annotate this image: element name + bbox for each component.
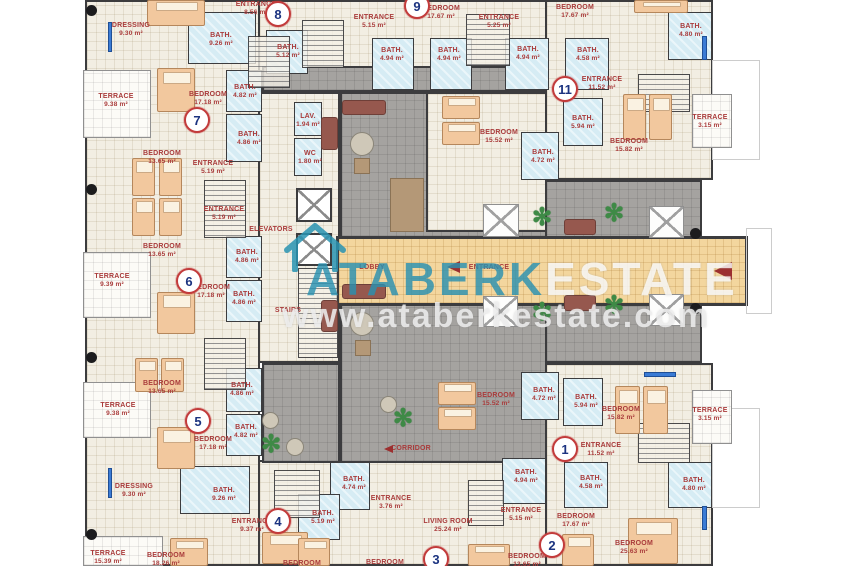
sofa (564, 295, 596, 311)
bed-pillow (448, 98, 475, 105)
unit-number-badge: 2 (539, 532, 565, 558)
entrance-arrow-icon (384, 445, 393, 453)
column-dot (86, 5, 97, 16)
skylight (483, 296, 518, 327)
room-label: BATH.4.94 m² (380, 47, 404, 63)
room-area: 4.94 m² (437, 55, 461, 62)
room-label: BATH.4.58 m² (579, 475, 603, 491)
room-area: 18.26 m² (147, 560, 185, 566)
round-table (286, 438, 304, 456)
room-name: CORRIDOR (391, 445, 431, 452)
plant-icon: ✻ (532, 206, 552, 230)
room-label: CORRIDOR (391, 445, 431, 453)
room-name: BEDROOM (194, 436, 232, 443)
room-label: BATH.5.19 m² (311, 510, 335, 526)
room-area: 9.39 m² (94, 281, 129, 288)
room-name: BATH. (515, 469, 537, 476)
room-label: BATH.4.94 m² (437, 47, 461, 63)
room-label: BATH.5.94 m² (571, 115, 595, 131)
room-label: BEDROOM17.18 m² (194, 436, 232, 452)
room-area: 5.19 m² (204, 214, 245, 221)
lobby-path (336, 236, 748, 306)
room-name: BATH. (343, 476, 365, 483)
room-name: BEDROOM (556, 4, 594, 11)
room-area: 11.52 m² (581, 450, 622, 457)
sofa (321, 300, 338, 332)
room-name: STAIRS (275, 307, 301, 314)
room-name: BATH. (210, 32, 232, 39)
room-name: BATH. (231, 382, 253, 389)
window-strip (108, 468, 112, 498)
room-label: ENTRANCE (469, 264, 510, 272)
bed-pillow (647, 390, 665, 404)
unit-number-badge: 8 (265, 1, 291, 27)
room-area: 4.80 m² (679, 31, 703, 38)
room-area: 13.65 m² (143, 251, 181, 258)
room-area: 4.94 m² (380, 55, 404, 62)
room-name: BATH. (533, 387, 555, 394)
column-dot (86, 529, 97, 540)
unit-number-badge: 6 (176, 268, 202, 294)
stair-flight (468, 480, 504, 526)
room-area: 4.72 m² (532, 395, 556, 402)
unit-number-badge: 7 (184, 107, 210, 133)
room-area: 5.15 m² (501, 515, 542, 522)
room-name: ENTRANCE (582, 76, 623, 83)
bed-pillow (636, 522, 672, 535)
bed (649, 94, 672, 140)
room-label: ENTRANCE11.52 m² (581, 442, 622, 458)
room-area: 13.65 m² (143, 388, 181, 395)
bed (468, 544, 510, 566)
bed-pillow (156, 2, 197, 10)
room-label: ENTRANCE5.15 m² (501, 507, 542, 523)
column-dot (86, 184, 97, 195)
bed-pillow (163, 430, 190, 442)
bed-pillow (619, 390, 637, 404)
room-label: LAV.1.94 m² (296, 113, 320, 129)
room-name: BATH. (683, 477, 705, 484)
bed (623, 94, 646, 140)
room-name: BATH. (575, 394, 597, 401)
room-area: 3.15 m² (692, 122, 727, 129)
plant-icon: ✻ (532, 301, 552, 325)
bed (157, 427, 195, 469)
room-area: 5.12 m² (276, 52, 300, 59)
room-area: 17.67 m² (557, 521, 595, 528)
sofa (342, 284, 386, 299)
room-label: BATH.4.82 m² (233, 84, 257, 100)
bed (157, 292, 195, 334)
room-area: 13.65 m² (143, 158, 181, 165)
room-label: DRESSING9.30 m² (112, 22, 150, 38)
room-area: 15.82 m² (610, 146, 648, 153)
room-name: BEDROOM (143, 150, 181, 157)
room-area: 4.58 m² (576, 55, 600, 62)
room-label: ELEVATORS (249, 226, 292, 234)
room-label: BEDROOM15.52 m² (477, 392, 515, 408)
room-area: 1.94 m² (296, 121, 320, 128)
window-strip (702, 506, 707, 530)
room-name: ENTRANCE (193, 160, 234, 167)
bed (132, 198, 155, 236)
room-label: BEDROOM18.26 m² (147, 552, 185, 566)
canopy-outline (746, 228, 772, 314)
room-name: DRESSING (112, 22, 150, 29)
bed-pillow (444, 409, 471, 416)
room-label: BEDROOM (366, 559, 404, 566)
room-name: BATH. (234, 84, 256, 91)
plant-icon: ✻ (393, 407, 413, 431)
room-label: WC1.80 m² (298, 150, 322, 166)
skylight (649, 206, 684, 238)
room-area: 4.86 m² (230, 390, 254, 397)
floor-plan: ATABERKESTATE www.ataberkestate.com ✻✻✻✻… (0, 0, 850, 566)
room-name: BEDROOM (602, 406, 640, 413)
room-label: BATH.4.82 m² (234, 424, 258, 440)
room-label: BEDROOM15.52 m² (480, 129, 518, 145)
room-label: ENTRANCE5.15 m² (354, 14, 395, 30)
bed (562, 534, 594, 566)
room-name: BEDROOM (557, 513, 595, 520)
room-name: BATH. (517, 46, 539, 53)
room-area: 25.63 m² (615, 548, 653, 555)
room-area: 5.19 m² (311, 518, 335, 525)
room-area: 9.38 m² (98, 101, 133, 108)
room-area: 4.80 m² (682, 485, 706, 492)
room-label: ENTRANCE11.52 m² (582, 76, 623, 92)
room-area: 15.82 m² (602, 414, 640, 421)
plant-icon: ✻ (604, 294, 624, 318)
room-label: STAIRS (275, 307, 301, 315)
room-name: ENTRANCE (479, 14, 520, 21)
room-label: BEDROOM13.65 m² (143, 150, 181, 166)
bed-pillow (643, 2, 681, 7)
room-area: 17.67 m² (422, 13, 460, 20)
room-label: BATH.5.94 m² (574, 394, 598, 410)
column-dot (690, 228, 701, 239)
room-area: 4.94 m² (514, 477, 538, 484)
room-area: 5.94 m² (571, 123, 595, 130)
room-label: TERRACE9.38 m² (98, 93, 133, 109)
room-label: BATH.4.94 m² (516, 46, 540, 62)
room-name: BEDROOM (147, 552, 185, 559)
bed-pillow (475, 546, 505, 553)
room-area: 4.72 m² (531, 157, 555, 164)
bed-pillow (304, 541, 327, 550)
unit-number-badge: 1 (552, 436, 578, 462)
sofa (564, 219, 596, 235)
room-label: BATH.4.86 m² (235, 249, 259, 265)
room-area: 4.86 m² (232, 299, 256, 306)
bed-pillow (163, 201, 180, 212)
bed (442, 122, 480, 145)
room-label: BATH.5.12 m² (276, 44, 300, 60)
room-name: BATH. (233, 291, 255, 298)
room-name: BEDROOM (143, 380, 181, 387)
room-area: 15.39 m² (90, 558, 125, 565)
room-label: BATH.4.80 m² (679, 23, 703, 39)
room-area: 25.24 m² (423, 526, 472, 533)
bed-pillow (136, 201, 153, 212)
room-area: 9.30 m² (112, 30, 150, 37)
room-label: BATH.9.26 m² (212, 487, 236, 503)
skylight (483, 204, 519, 237)
room-label: TERRACE15.39 m² (90, 550, 125, 566)
room-label: ENTRANCE5.19 m² (204, 206, 245, 222)
room-label: ENTRANCE5.25 m² (479, 14, 520, 30)
stair-flight (302, 20, 344, 68)
room-label: LIVING ROOM25.24 m² (423, 518, 472, 534)
room-area: 4.58 m² (579, 483, 603, 490)
room-name: BATH. (572, 115, 594, 122)
room-label: ENTRANCE3.76 m² (371, 495, 412, 511)
room-area: 11.52 m² (582, 84, 623, 91)
room-name: BATH. (680, 23, 702, 30)
room-area: 4.94 m² (516, 54, 540, 61)
elevator-cell (296, 188, 332, 222)
room-name: ENTRANCE (354, 14, 395, 21)
table (354, 158, 370, 174)
plant-icon: ✻ (261, 433, 281, 457)
room-name: BEDROOM (508, 553, 546, 560)
room-name: LIVING ROOM (423, 518, 472, 525)
room-label: BATH.4.74 m² (342, 476, 366, 492)
room-label: BATH.4.86 m² (232, 291, 256, 307)
bed (634, 0, 688, 13)
room-name: BEDROOM (477, 392, 515, 399)
room-area: 9.26 m² (209, 40, 233, 47)
bed-pillow (139, 361, 156, 371)
room-name: BATH. (580, 475, 602, 482)
room-name: BATH. (277, 44, 299, 51)
room-name: ENTRANCE (501, 507, 542, 514)
bed (438, 382, 476, 405)
room-area: 5.19 m² (193, 168, 234, 175)
room-name: BATH. (236, 249, 258, 256)
bed (147, 0, 205, 26)
window-strip (702, 36, 707, 60)
room-area: 17.67 m² (556, 12, 594, 19)
room-label: BEDROOM15.82 m² (610, 138, 648, 154)
room-area: 4.82 m² (233, 92, 257, 99)
room-area: 13.65 m² (508, 561, 546, 566)
room-name: ENTRANCE (371, 495, 412, 502)
room-area: 5.94 m² (574, 402, 598, 409)
bed (643, 386, 668, 434)
round-table (262, 412, 279, 429)
bed-pillow (165, 361, 182, 371)
unit-number-badge: 5 (185, 408, 211, 434)
bed-pillow (163, 295, 190, 307)
room-label: TERRACE3.15 m² (692, 407, 727, 423)
room-name: TERRACE (692, 114, 727, 121)
room-area: 17.18 m² (189, 99, 227, 106)
room-label: BATH.4.86 m² (237, 131, 261, 147)
room-name: ENTRANCE (581, 442, 622, 449)
room-area: 1.80 m² (298, 158, 322, 165)
elevator-cell (296, 233, 332, 266)
column-dot (86, 352, 97, 363)
room-area: 4.86 m² (235, 257, 259, 264)
room-label: LOBBY (359, 264, 385, 272)
room-label: BATH.4.80 m² (682, 477, 706, 493)
room-label: BEDROOM13.65 m² (143, 380, 181, 396)
room-name: TERRACE (100, 402, 135, 409)
bed-pillow (653, 98, 670, 111)
bed (442, 96, 480, 119)
room-name: LOBBY (359, 264, 385, 271)
unit-number-badge: 11 (552, 76, 578, 102)
table (355, 340, 371, 356)
bed-pillow (448, 124, 475, 131)
room-area: 3.76 m² (371, 503, 412, 510)
room-label: TERRACE9.39 m² (94, 273, 129, 289)
bed (159, 198, 182, 236)
room-area: 17.18 m² (192, 292, 230, 299)
room-name: BEDROOM (610, 138, 648, 145)
bed-pillow (627, 98, 644, 111)
room-area: 3.15 m² (692, 415, 727, 422)
entrance-arrow-icon (447, 261, 460, 273)
room-name: ELEVATORS (249, 226, 292, 233)
room-name: WC (304, 150, 316, 157)
room-area: 9.30 m² (115, 491, 153, 498)
room-name: BATH. (213, 487, 235, 494)
room-label: TERRACE3.15 m² (692, 114, 727, 130)
window-strip (644, 372, 676, 377)
round-table (350, 132, 374, 156)
room-label: BATH.9.26 m² (209, 32, 233, 48)
room-name: DRESSING (115, 483, 153, 490)
room-name: BEDROOM (366, 559, 404, 566)
room-area: 9.38 m² (100, 410, 135, 417)
room-name: BATH. (532, 149, 554, 156)
plant-icon: ✻ (604, 202, 624, 226)
room-name: BATH. (577, 47, 599, 54)
room-name: BATH. (235, 424, 257, 431)
room-area: 5.15 m² (354, 22, 395, 29)
room-name: TERRACE (98, 93, 133, 100)
bathroom-floor (372, 38, 414, 90)
room-name: TERRACE (692, 407, 727, 414)
sofa (342, 100, 386, 115)
room-name: ENTRANCE (469, 264, 510, 271)
room-label: BATH.4.72 m² (531, 149, 555, 165)
bed-pillow (163, 72, 190, 85)
room-label: DRESSING9.30 m² (115, 483, 153, 499)
room-label: BATH.4.94 m² (514, 469, 538, 485)
room-name: BATH. (381, 47, 403, 54)
room-name: BEDROOM (189, 91, 227, 98)
room-label: BATH.4.58 m² (576, 47, 600, 63)
sofa (321, 117, 338, 150)
room-area: 15.52 m² (480, 137, 518, 144)
room-label: BEDROOM17.18 m² (189, 91, 227, 107)
room-name: BEDROOM (480, 129, 518, 136)
unit-number-badge: 4 (265, 508, 291, 534)
room-label: BATH.4.72 m² (532, 387, 556, 403)
room-area: 4.74 m² (342, 484, 366, 491)
room-name: BATH. (438, 47, 460, 54)
room-label: BATH.4.86 m² (230, 382, 254, 398)
room-name: TERRACE (94, 273, 129, 280)
room-label: BEDROOM (283, 560, 321, 566)
room-name: ENTRANCE (204, 206, 245, 213)
room-name: BATH. (312, 510, 334, 517)
room-area: 15.52 m² (477, 400, 515, 407)
room-label: ENTRANCE5.19 m² (193, 160, 234, 176)
room-area: 5.25 m² (479, 22, 520, 29)
unit-number-badge: 3 (423, 546, 449, 566)
room-name: BEDROOM (615, 540, 653, 547)
room-name: LAV. (300, 113, 316, 120)
entrance-arrow-icon (714, 262, 732, 280)
bed-pillow (568, 537, 591, 547)
room-name: BEDROOM (283, 560, 321, 566)
round-table (350, 312, 374, 336)
table (390, 178, 424, 232)
skylight (649, 294, 684, 326)
room-label: BEDROOM13.65 m² (143, 243, 181, 259)
bed-pillow (444, 384, 471, 391)
room-label: BEDROOM13.65 m² (508, 553, 546, 566)
room-label: BEDROOM25.63 m² (615, 540, 653, 556)
room-area: 9.26 m² (212, 495, 236, 502)
bed-pillow (176, 541, 203, 550)
room-label: BEDROOM17.67 m² (556, 4, 594, 20)
room-name: BEDROOM (143, 243, 181, 250)
bed (438, 407, 476, 430)
room-label: BEDROOM15.82 m² (602, 406, 640, 422)
room-area: 17.18 m² (194, 444, 232, 451)
room-name: TERRACE (90, 550, 125, 557)
room-label: TERRACE9.38 m² (100, 402, 135, 418)
column-dot (690, 303, 701, 314)
room-area: 4.82 m² (234, 432, 258, 439)
room-label: BEDROOM17.67 m² (557, 513, 595, 529)
room-name: BATH. (238, 131, 260, 138)
room-area: 4.86 m² (237, 139, 261, 146)
